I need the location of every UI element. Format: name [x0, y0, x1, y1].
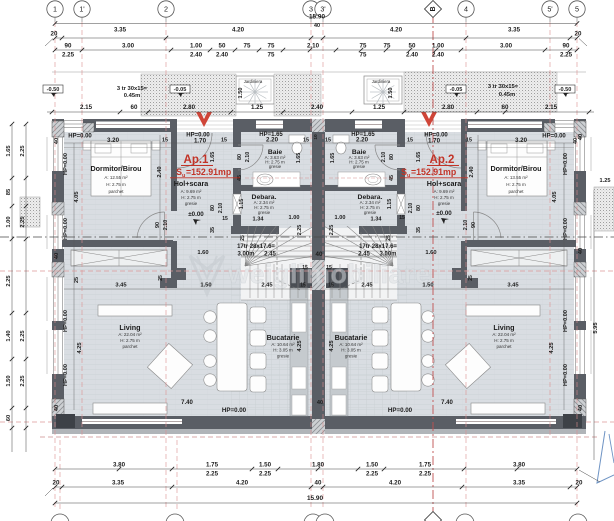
svg-text:25: 25 [74, 277, 80, 283]
svg-text:1.25: 1.25 [600, 178, 611, 184]
svg-text:40: 40 [578, 405, 584, 411]
svg-text:gresie: gresie [185, 201, 198, 206]
svg-text:2.25: 2.25 [329, 225, 335, 236]
svg-text:3.20: 3.20 [515, 137, 528, 144]
svg-text:0.45m: 0.45m [499, 92, 515, 98]
svg-text:HP=0.00: HP=0.00 [63, 218, 69, 240]
svg-text:40: 40 [316, 251, 323, 258]
svg-text:2.10: 2.10 [463, 220, 469, 231]
svg-text:=152.91mp: =152.91mp [186, 167, 232, 177]
svg-text:1: 1 [53, 4, 57, 13]
svg-text:10: 10 [313, 134, 319, 140]
svg-text:A: 9.69 m²: A: 9.69 m² [434, 189, 455, 194]
svg-text:1.65: 1.65 [6, 145, 12, 157]
svg-text:1.50: 1.50 [238, 88, 244, 99]
svg-text:1.50: 1.50 [6, 375, 12, 386]
svg-text:40: 40 [578, 248, 584, 254]
svg-text:90: 90 [563, 43, 570, 50]
svg-text:20: 20 [575, 31, 582, 38]
svg-text:17tr 28x17.6=: 17tr 28x17.6= [237, 244, 275, 250]
svg-text:15: 15 [326, 265, 332, 271]
svg-text:H: 2.75 m: H: 2.75 m [494, 338, 514, 343]
svg-text:Bucatarie: Bucatarie [267, 333, 300, 342]
svg-text:HP=0.00: HP=0.00 [68, 134, 92, 140]
svg-text:15: 15 [328, 283, 334, 289]
svg-text:HP=0.00: HP=0.00 [563, 153, 569, 175]
svg-text:2.25: 2.25 [6, 275, 12, 287]
svg-text:Jardiniera: Jardiniera [372, 79, 391, 84]
svg-text:20: 20 [576, 480, 583, 487]
svg-text:20: 20 [51, 31, 58, 38]
svg-text:2.10: 2.10 [408, 203, 414, 214]
svg-text:4.05: 4.05 [74, 191, 80, 203]
svg-text:4.25: 4.25 [77, 342, 83, 354]
svg-text:1.65: 1.65 [416, 152, 422, 163]
svg-text:2.45: 2.45 [361, 283, 373, 289]
svg-text:5': 5' [547, 4, 553, 13]
svg-text:40: 40 [317, 400, 323, 406]
svg-text:3.20: 3.20 [107, 137, 120, 144]
svg-text:45: 45 [389, 175, 395, 181]
svg-text:H: 2.75 m: H: 2.75 m [434, 195, 454, 200]
svg-text:50: 50 [219, 43, 226, 50]
svg-text:3 tr 30x15=: 3 tr 30x15= [117, 86, 148, 92]
svg-text:25: 25 [240, 235, 246, 241]
svg-text:1.50: 1.50 [366, 462, 379, 469]
svg-text:15: 15 [303, 138, 309, 144]
svg-text:1.40: 1.40 [6, 330, 12, 341]
svg-text:3.00m: 3.00m [237, 252, 254, 258]
svg-text:2.40: 2.40 [311, 104, 324, 111]
svg-text:Bucatarie: Bucatarie [335, 333, 368, 342]
svg-text:gresie: gresie [258, 210, 271, 215]
svg-text:2.45: 2.45 [264, 252, 276, 258]
svg-text:Hol+scara: Hol+scara [427, 179, 463, 188]
svg-text:4.20: 4.20 [232, 27, 245, 34]
svg-text:-0.50: -0.50 [47, 87, 60, 93]
svg-text:1.65: 1.65 [296, 153, 302, 164]
svg-text:90: 90 [65, 43, 72, 50]
svg-text:gresie: gresie [353, 164, 366, 169]
svg-text:3': 3' [320, 4, 326, 13]
svg-text:85: 85 [6, 188, 12, 195]
svg-text:75: 75 [268, 43, 275, 50]
svg-text:gresie: gresie [269, 164, 282, 169]
svg-text:1.75: 1.75 [206, 462, 219, 469]
svg-text:75: 75 [244, 43, 251, 50]
svg-text:2.25: 2.25 [20, 330, 26, 342]
svg-text:15: 15 [407, 138, 413, 144]
svg-text:40: 40 [314, 23, 320, 29]
svg-text:4.20: 4.20 [389, 480, 402, 487]
svg-text:H: 3.05 m: H: 3.05 m [273, 348, 293, 353]
svg-text:80: 80 [210, 205, 216, 211]
svg-text:-0.50: -0.50 [559, 87, 572, 93]
svg-text:±0.00: ±0.00 [188, 211, 204, 218]
svg-text:75: 75 [384, 43, 391, 50]
svg-text:1.50: 1.50 [200, 283, 211, 289]
svg-text:1.34: 1.34 [253, 217, 265, 223]
svg-text:80: 80 [416, 205, 422, 211]
svg-text:HP=0.00: HP=0.00 [222, 407, 247, 414]
svg-text:80: 80 [389, 154, 395, 160]
svg-text:3 tr 30x15=: 3 tr 30x15= [488, 84, 519, 90]
svg-text:4.20: 4.20 [390, 27, 403, 34]
svg-text:60: 60 [131, 104, 138, 111]
svg-text:Jardiniera: Jardiniera [244, 79, 263, 84]
svg-text:7.40: 7.40 [181, 400, 193, 406]
svg-text:2.40: 2.40 [469, 166, 475, 177]
svg-text:2.25: 2.25 [20, 375, 26, 387]
svg-text:H: 2.75 m: H: 2.75 m [181, 195, 201, 200]
svg-text:1.75: 1.75 [419, 462, 432, 469]
svg-text:2.10: 2.10 [245, 152, 251, 163]
svg-text:HP=0.00: HP=0.00 [388, 407, 413, 414]
svg-text:3.45: 3.45 [115, 283, 127, 289]
svg-text:H: 2.75 m: H: 2.75 m [106, 182, 126, 187]
svg-text:parchet: parchet [496, 344, 512, 349]
svg-text:2.45: 2.45 [261, 283, 273, 289]
svg-text:3.35: 3.35 [112, 480, 125, 487]
svg-text:gresie: gresie [345, 353, 358, 358]
svg-text:1.50: 1.50 [259, 462, 272, 469]
svg-text:±0.00: ±0.00 [436, 210, 452, 217]
svg-text:A: 10.64 m²: A: 10.64 m² [339, 342, 363, 347]
svg-text:1.70: 1.70 [194, 138, 207, 145]
svg-text:-0.05: -0.05 [450, 87, 463, 93]
svg-text:2: 2 [164, 4, 168, 13]
svg-text:2.80: 2.80 [442, 104, 455, 111]
svg-text:A: 10.64 m²: A: 10.64 m² [271, 342, 295, 347]
svg-text:HP=0.00: HP=0.00 [63, 364, 69, 386]
svg-text:1.00: 1.00 [190, 43, 203, 50]
svg-text:15: 15 [302, 265, 308, 271]
svg-text:1.70: 1.70 [428, 138, 441, 145]
svg-text:HP=0.00: HP=0.00 [542, 134, 566, 140]
svg-text:H: 2.75 m: H: 2.75 m [120, 338, 140, 343]
svg-text:7.40: 7.40 [441, 400, 453, 406]
svg-text:2.15: 2.15 [545, 104, 558, 111]
svg-text:4.20: 4.20 [236, 480, 249, 487]
svg-text:Living: Living [493, 323, 514, 332]
svg-text:parchet: parchet [108, 189, 124, 194]
svg-text:5: 5 [575, 4, 579, 13]
svg-text:-0.05: -0.05 [174, 87, 187, 93]
svg-text:25: 25 [386, 235, 392, 241]
svg-text:1.00: 1.00 [335, 215, 346, 221]
svg-text:2.25: 2.25 [560, 52, 573, 59]
svg-text:15: 15 [222, 216, 228, 222]
svg-text:2.40: 2.40 [157, 166, 163, 177]
svg-text:Ap.1: Ap.1 [184, 154, 210, 166]
svg-text:gresie: gresie [364, 210, 377, 215]
svg-text:2.25: 2.25 [419, 471, 432, 478]
svg-text:2.25: 2.25 [20, 216, 26, 228]
svg-text:2.25: 2.25 [297, 225, 303, 236]
svg-text:A: 9.69 m²: A: 9.69 m² [181, 189, 202, 194]
svg-text:40: 40 [315, 480, 322, 487]
svg-text:40: 40 [54, 253, 60, 259]
svg-text:2.40: 2.40 [190, 52, 203, 59]
svg-text:35: 35 [210, 227, 216, 233]
svg-text:Dormitor/Birou: Dormitor/Birou [90, 164, 141, 173]
svg-text:A: 13.55 m²: A: 13.55 m² [504, 175, 528, 180]
svg-text:1.25: 1.25 [251, 104, 264, 111]
svg-text:4: 4 [464, 4, 468, 13]
svg-text:15: 15 [162, 138, 168, 144]
svg-text:2.25: 2.25 [20, 145, 26, 157]
svg-text:2.10: 2.10 [163, 220, 169, 231]
svg-text:3: 3 [309, 4, 313, 13]
svg-text:1': 1' [79, 4, 85, 13]
svg-text:B: B [430, 6, 437, 11]
svg-text:40: 40 [54, 138, 60, 144]
svg-text:2.40: 2.40 [432, 52, 445, 59]
svg-text:90: 90 [471, 222, 477, 228]
svg-text:parchet: parchet [122, 344, 138, 349]
svg-text:HP=0.00: HP=0.00 [63, 310, 69, 332]
svg-text:75: 75 [268, 52, 275, 59]
svg-text:H: 2.75 m: H: 2.75 m [506, 182, 526, 187]
svg-text:20: 20 [53, 480, 60, 487]
svg-text:gresie: gresie [277, 353, 290, 358]
svg-text:0.45m: 0.45m [124, 93, 140, 99]
svg-text:3.80: 3.80 [113, 462, 126, 469]
svg-text:60: 60 [6, 415, 12, 421]
svg-text:1.15: 1.15 [387, 199, 393, 210]
svg-text:1.15: 1.15 [239, 199, 245, 210]
svg-text:Dormitor/Birou: Dormitor/Birou [490, 164, 541, 173]
svg-text:2.25: 2.25 [206, 471, 219, 478]
svg-text:HP=0.00: HP=0.00 [563, 310, 569, 332]
svg-text:parchet: parchet [508, 189, 524, 194]
svg-text:1.60: 1.60 [425, 250, 436, 256]
svg-text:15: 15 [221, 138, 227, 144]
svg-text:2.10: 2.10 [307, 43, 320, 50]
svg-text:2.20: 2.20 [356, 137, 369, 144]
svg-text:90: 90 [155, 222, 161, 228]
svg-text:2.10: 2.10 [218, 203, 224, 214]
svg-text:3.35: 3.35 [508, 27, 521, 34]
svg-text:Hol+scara: Hol+scara [174, 179, 210, 188]
svg-text:Living: Living [119, 323, 140, 332]
svg-text:15.90: 15.90 [309, 14, 325, 21]
svg-text:1.25: 1.25 [373, 104, 386, 111]
svg-text:HP=0.00: HP=0.00 [63, 153, 69, 175]
svg-text:HP=0.00: HP=0.00 [563, 218, 569, 240]
svg-text:15: 15 [399, 215, 405, 221]
svg-text:2.25: 2.25 [62, 52, 75, 59]
svg-text:2.15: 2.15 [80, 104, 93, 111]
svg-text:=152.91mp: =152.91mp [411, 167, 457, 177]
svg-text:1.50: 1.50 [422, 283, 433, 289]
svg-text:15.90: 15.90 [307, 495, 323, 502]
svg-text:H: 3.05 m: H: 3.05 m [341, 348, 361, 353]
svg-text:3.80: 3.80 [513, 462, 526, 469]
svg-text:17tr 28x17.6=: 17tr 28x17.6= [359, 244, 397, 250]
svg-text:3.00: 3.00 [500, 43, 513, 50]
svg-text:A: 12.55 m²: A: 12.55 m² [104, 175, 128, 180]
svg-text:25: 25 [468, 275, 474, 281]
svg-text:4.25: 4.25 [549, 342, 555, 354]
svg-text:1.60: 1.60 [197, 250, 208, 256]
svg-text:80: 80 [237, 154, 243, 160]
svg-text:2.40: 2.40 [406, 52, 419, 59]
svg-text:2.40: 2.40 [216, 52, 229, 59]
svg-text:2.25: 2.25 [366, 471, 379, 478]
svg-text:Ap.2: Ap.2 [430, 154, 455, 166]
svg-text:50: 50 [409, 43, 416, 50]
svg-text:1.65: 1.65 [330, 153, 336, 164]
svg-text:2.25: 2.25 [259, 471, 272, 478]
svg-text:2.80: 2.80 [183, 104, 196, 111]
svg-text:25: 25 [158, 275, 164, 281]
svg-text:3.00m: 3.00m [379, 252, 396, 258]
svg-text:1.00: 1.00 [432, 43, 445, 50]
svg-text:40: 40 [573, 138, 579, 144]
svg-text:2.10: 2.10 [381, 152, 387, 163]
svg-text:15: 15 [300, 283, 306, 289]
svg-text:40: 40 [54, 405, 60, 411]
svg-text:1.65: 1.65 [210, 152, 216, 163]
svg-text:A: 22.04 m²: A: 22.04 m² [118, 332, 142, 337]
svg-text:3.00: 3.00 [122, 43, 135, 50]
svg-text:60: 60 [502, 104, 509, 111]
svg-text:3.45: 3.45 [507, 283, 519, 289]
svg-text:3.35: 3.35 [513, 480, 526, 487]
svg-text:1.00: 1.00 [289, 215, 300, 221]
svg-text:1.80: 1.80 [312, 462, 325, 469]
svg-text:2.20: 2.20 [266, 137, 279, 144]
svg-text:1.34: 1.34 [371, 217, 383, 223]
svg-text:4.05: 4.05 [552, 191, 558, 203]
svg-text:75: 75 [360, 52, 367, 59]
svg-text:35: 35 [416, 227, 422, 233]
svg-text:75: 75 [360, 43, 367, 50]
svg-text:A: 22.04 m²: A: 22.04 m² [492, 332, 516, 337]
svg-text:15: 15 [466, 138, 472, 144]
svg-text:1.50: 1.50 [388, 88, 394, 99]
svg-text:1.00: 1.00 [6, 216, 12, 227]
svg-text:2.45: 2.45 [358, 252, 370, 258]
svg-text:3.35: 3.35 [114, 27, 127, 34]
svg-text:HP=0.00: HP=0.00 [563, 364, 569, 386]
svg-text:15: 15 [325, 138, 331, 144]
svg-text:gresie: gresie [438, 201, 451, 206]
